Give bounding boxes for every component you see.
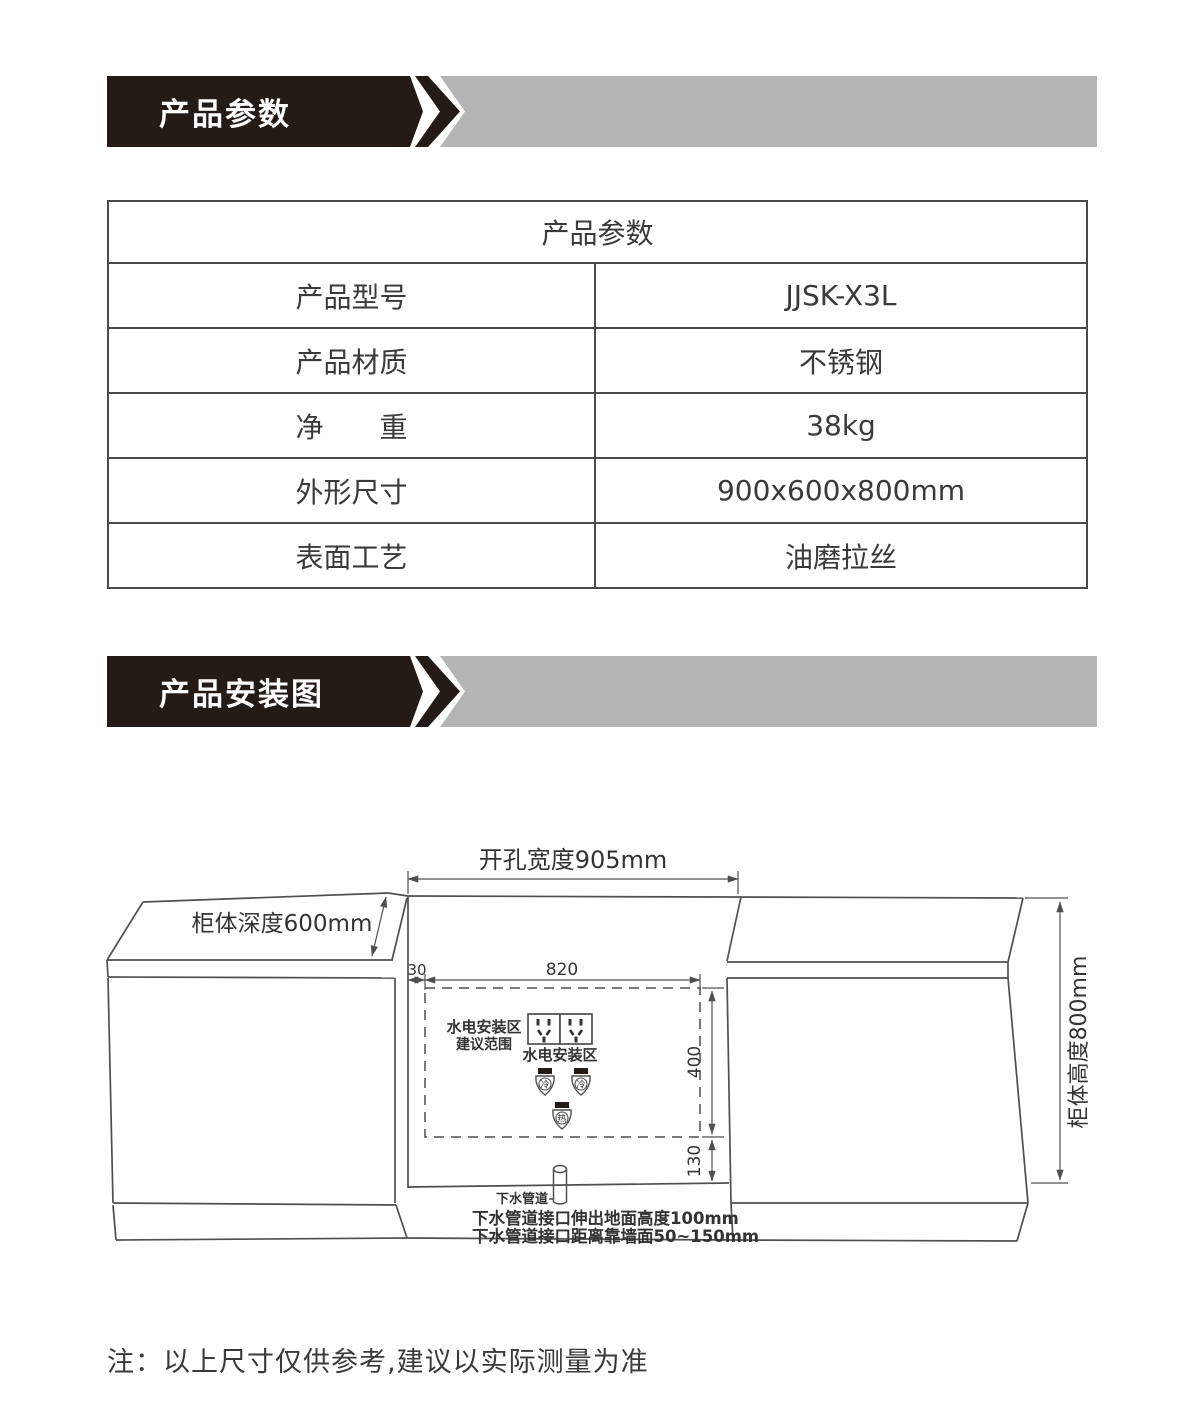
dim-30-label: 30 bbox=[407, 961, 426, 979]
spec-value: JJSK-X3L bbox=[595, 263, 1087, 328]
section-title-install: 产品安装图 bbox=[107, 669, 324, 714]
drain-note-line2: 下水管道接口距离靠墙面50~150mm bbox=[472, 1226, 759, 1246]
spec-value: 油磨拉丝 bbox=[595, 523, 1087, 588]
banner-black-box: 产品安装图 bbox=[107, 656, 423, 727]
spec-label: 产品型号 bbox=[108, 263, 595, 328]
spec-value: 38kg bbox=[595, 393, 1087, 458]
recess-left-side-wall-edge bbox=[392, 898, 407, 960]
cold-valve-icon: 冷 bbox=[536, 1068, 554, 1095]
left-cabinet-top-left-edge bbox=[107, 902, 143, 960]
wall-top-edge bbox=[408, 896, 1023, 898]
table-row: 净 重 38kg bbox=[108, 393, 1087, 458]
spec-label: 外形尺寸 bbox=[108, 458, 595, 523]
dim-opening-width-label: 开孔宽度905mm bbox=[479, 846, 668, 874]
section-title-params: 产品参数 bbox=[107, 89, 291, 134]
recess-right-side-wall-edge bbox=[727, 897, 741, 961]
product-spec-page: 产品参数 产品参数 产品型号 JJSK-X3L 产品材质 不锈钢 净 重 38k… bbox=[0, 0, 1200, 1421]
sockets-label: 水电安装区 bbox=[522, 1046, 597, 1064]
footer-note: 注：以上尺寸仅供参考,建议以实际测量为准 bbox=[107, 1340, 649, 1379]
spec-label: 表面工艺 bbox=[108, 523, 595, 588]
svg-text:冷: 冷 bbox=[540, 1079, 549, 1091]
wall-floor-line bbox=[408, 1183, 729, 1187]
spec-table-title: 产品参数 bbox=[108, 201, 1087, 263]
table-row: 表面工艺 油磨拉丝 bbox=[108, 523, 1087, 588]
power-socket-icon bbox=[528, 1014, 592, 1044]
installation-diagram: 冷 冷 热 开孔宽度905mm 柜体深度600mm 柜体高度800mm 30 8… bbox=[90, 830, 1200, 1310]
section-banner-params: 产品参数 bbox=[107, 76, 1090, 147]
left-cabinet-top-back-edge bbox=[143, 893, 388, 902]
dim-height-label: 柜体高度800mm bbox=[1067, 956, 1092, 1129]
banner-gray-bar bbox=[440, 656, 1097, 727]
spec-label: 净 重 bbox=[108, 393, 595, 458]
dim-130-label: 130 bbox=[685, 1145, 705, 1177]
svg-text:冷: 冷 bbox=[576, 1079, 585, 1091]
dim-depth-label: 柜体深度600mm bbox=[192, 911, 373, 937]
zone-label-line1: 水电安装区 bbox=[446, 1018, 521, 1036]
dim-400-label: 400 bbox=[685, 1046, 705, 1078]
spec-table: 产品参数 产品型号 JJSK-X3L 产品材质 不锈钢 净 重 38kg 外形尺… bbox=[107, 200, 1088, 589]
svg-text:热: 热 bbox=[557, 1113, 566, 1125]
drain-pipe-label: 下水管道 bbox=[496, 1191, 548, 1207]
cabinet-outlines bbox=[107, 893, 1028, 1241]
drain-note-line1: 下水管道接口伸出地面高度100mm bbox=[472, 1208, 739, 1228]
zone-label-line2: 建议范围 bbox=[456, 1036, 512, 1053]
table-row: 外形尺寸 900x600x800mm bbox=[108, 458, 1087, 523]
banner-gray-bar bbox=[440, 76, 1097, 147]
table-row: 产品材质 不锈钢 bbox=[108, 328, 1087, 393]
section-banner-install: 产品安装图 bbox=[107, 656, 1090, 727]
dim-820-label: 820 bbox=[546, 960, 578, 980]
dim-depth-line bbox=[372, 897, 386, 956]
table-row: 产品型号 JJSK-X3L bbox=[108, 263, 1087, 328]
cold-valve-icon: 冷 bbox=[572, 1068, 590, 1095]
hot-valve-icon: 热 bbox=[553, 1102, 571, 1129]
spec-label: 产品材质 bbox=[108, 328, 595, 393]
banner-black-box: 产品参数 bbox=[107, 76, 423, 147]
spec-value: 900x600x800mm bbox=[595, 458, 1087, 523]
spec-value: 不锈钢 bbox=[595, 328, 1087, 393]
